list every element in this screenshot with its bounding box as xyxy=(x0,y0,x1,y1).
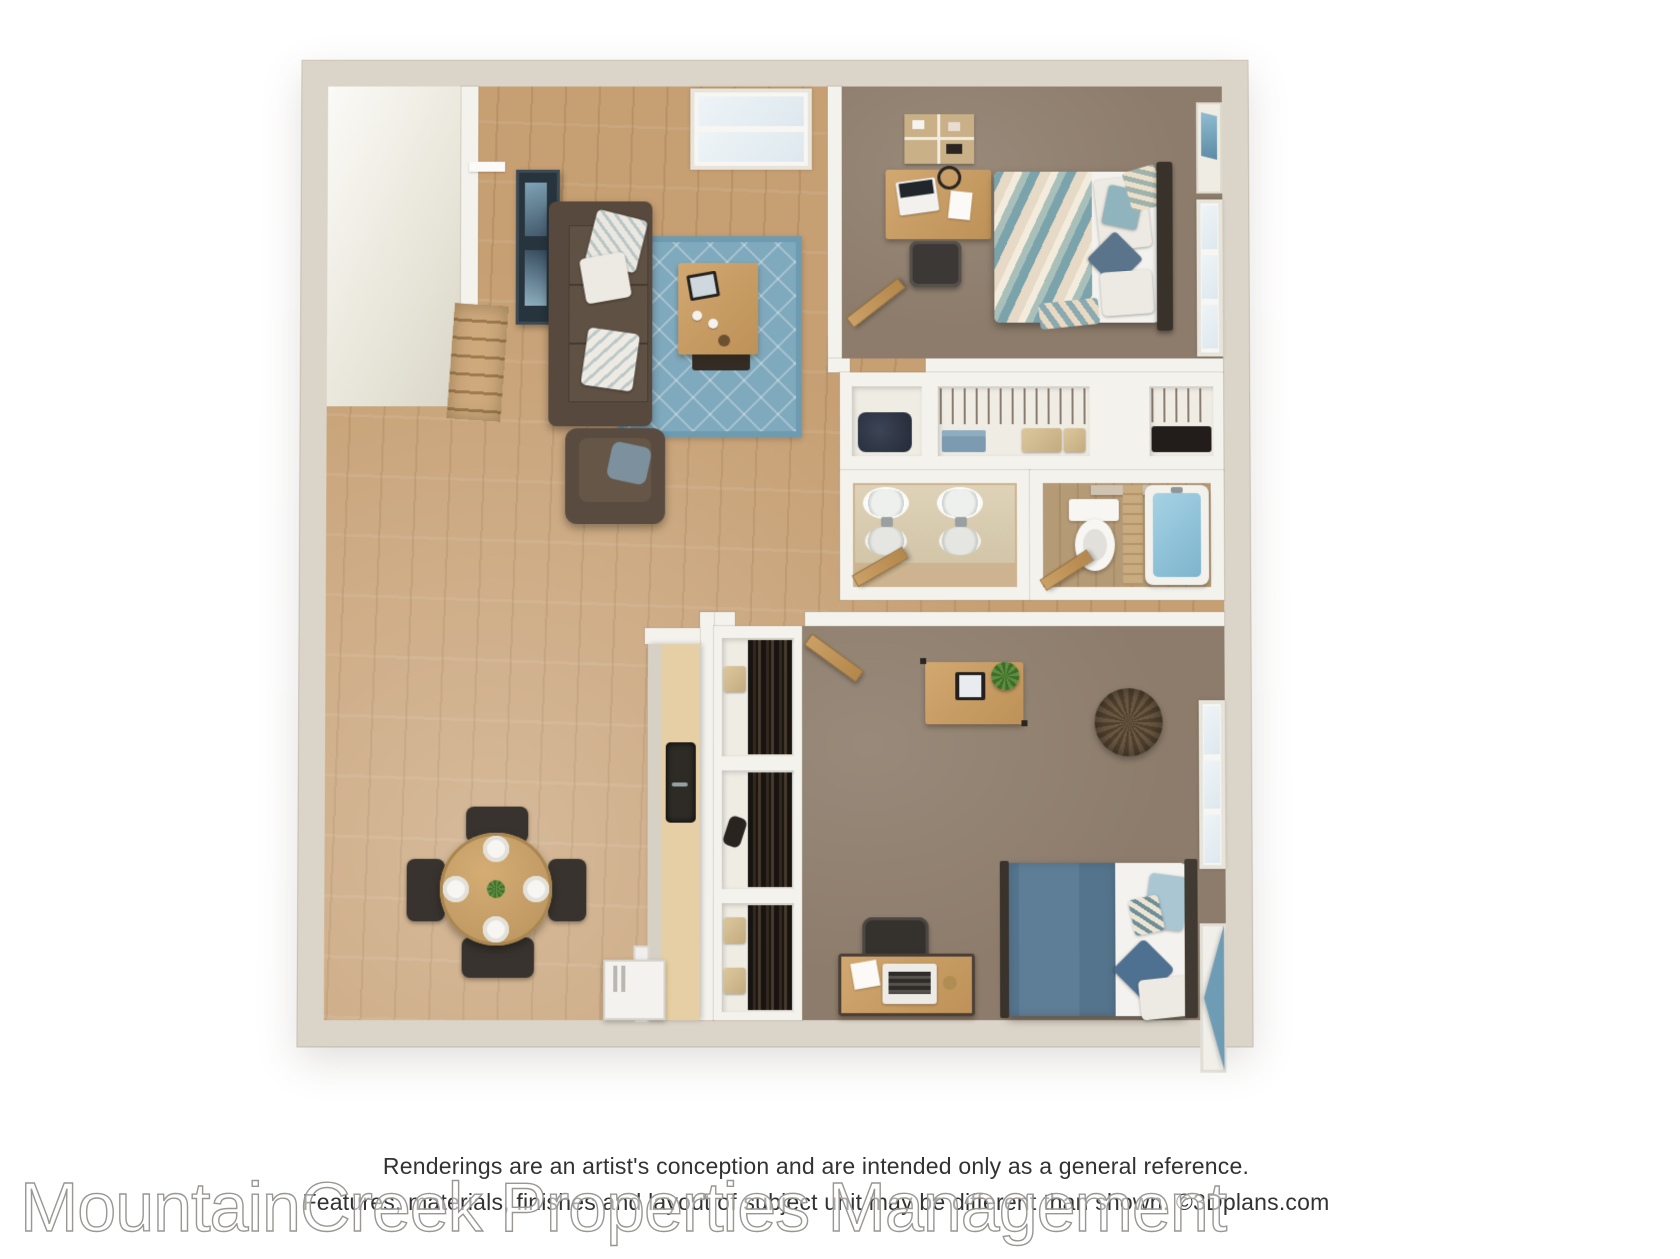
hanging-clothes xyxy=(748,905,792,1010)
bathroom xyxy=(1030,470,1224,600)
art-panel xyxy=(525,183,547,237)
dresser-leg xyxy=(920,658,926,664)
storage-box xyxy=(1064,428,1086,452)
bedroom-1-south-wall xyxy=(926,358,1223,372)
window-pane xyxy=(1204,815,1220,863)
tablet-screen xyxy=(959,675,981,697)
wall-art-bedroom-1 xyxy=(1196,102,1222,193)
hanging-clothes xyxy=(1151,388,1211,422)
utility-closet xyxy=(852,386,922,456)
headphones xyxy=(937,166,961,190)
pinned-note xyxy=(948,122,960,131)
linen-closet xyxy=(1149,386,1213,456)
plate xyxy=(443,876,469,902)
window-pane xyxy=(1202,305,1218,349)
tub-faucet xyxy=(1171,487,1183,493)
window-pane xyxy=(1204,706,1220,754)
sink xyxy=(865,489,907,517)
fridge-handle xyxy=(613,966,617,992)
floor-plan-rendering-page: Renderings are an artist's conception an… xyxy=(0,0,1680,1259)
bathroom-door xyxy=(1040,550,1094,591)
faucet xyxy=(955,517,967,527)
sofa-pillow xyxy=(581,327,641,391)
sink-faucet xyxy=(672,782,688,786)
tablet-screen xyxy=(690,274,717,298)
closet-row xyxy=(840,372,1224,470)
bed-2-headboard xyxy=(1184,859,1198,1018)
vanity-bathroom xyxy=(840,470,1030,600)
basket xyxy=(724,666,746,692)
typewriter-keys xyxy=(889,972,931,994)
hanging-clothes xyxy=(748,772,792,887)
hall-closet xyxy=(938,386,1090,456)
watermark: MountainCreek Properties Management xyxy=(20,1172,1226,1242)
sink-mirror-reflection xyxy=(939,527,981,555)
bathtub xyxy=(1145,485,1209,585)
bowl xyxy=(718,335,730,347)
toilet-tank xyxy=(1069,499,1119,521)
fridge-handle xyxy=(621,966,625,992)
accessory xyxy=(722,815,748,849)
closet-cubby xyxy=(722,903,794,1012)
dark-clothes-pile xyxy=(1151,426,1211,452)
plate xyxy=(483,916,509,942)
staircase xyxy=(446,303,508,422)
refrigerator xyxy=(603,960,665,1021)
living-room-window xyxy=(690,88,812,169)
laptop-screen xyxy=(899,179,934,197)
apartment-floor-plan xyxy=(297,61,1252,1047)
table-centerpiece xyxy=(487,880,505,898)
pinned-note xyxy=(912,120,924,129)
dresser-leg xyxy=(1021,720,1027,726)
hanging-clothes xyxy=(940,388,1088,424)
closet-cubby xyxy=(722,770,794,889)
desk-knob xyxy=(943,976,957,990)
window-pane xyxy=(1202,255,1218,299)
plate xyxy=(483,836,509,862)
sofa-pillow xyxy=(579,251,632,304)
dining-chair xyxy=(548,859,586,921)
closet-cubby xyxy=(722,638,794,756)
kitchen-wall-stub xyxy=(645,628,700,644)
folded-towels xyxy=(942,430,986,452)
blue-drape xyxy=(1204,925,1225,1070)
basket xyxy=(724,968,746,994)
window-pane xyxy=(698,96,804,126)
hanging-clothes xyxy=(748,640,792,754)
pinned-photo xyxy=(946,144,962,154)
bed-2-pillow xyxy=(1138,975,1192,1020)
paper xyxy=(948,190,973,220)
bedroom-2-closet xyxy=(714,626,802,1020)
desk-bedroom-2 xyxy=(838,954,975,1017)
basket xyxy=(724,917,746,943)
bed-1-headboard xyxy=(1156,162,1173,331)
armchair-pillow xyxy=(606,440,653,485)
potted-plant xyxy=(991,662,1019,690)
art-panel xyxy=(525,250,547,306)
window-pane xyxy=(1204,760,1220,808)
cup xyxy=(692,311,702,321)
window-pane xyxy=(1201,205,1217,249)
bedroom-2-window xyxy=(1199,700,1226,869)
paper xyxy=(850,960,880,990)
bedroom-2-north-wall xyxy=(805,612,1224,626)
bed-1-pillow xyxy=(1100,269,1155,316)
corkboard xyxy=(904,114,974,164)
bedroom-1-west-wall xyxy=(828,87,842,373)
coffee-table xyxy=(678,263,758,354)
tablet xyxy=(686,271,720,302)
water-heater xyxy=(858,412,912,452)
sink xyxy=(939,489,981,517)
laptop xyxy=(895,177,939,216)
bed-2-footboard xyxy=(1000,861,1009,1018)
bed-2-blanket xyxy=(1009,863,1116,1016)
tablet xyxy=(955,672,985,700)
stair-railing xyxy=(469,162,505,172)
dining-table xyxy=(440,833,553,946)
cup xyxy=(708,319,718,329)
plate xyxy=(523,876,549,902)
dresser xyxy=(925,662,1023,724)
bedroom-1-south-wall xyxy=(828,358,850,372)
armchair xyxy=(565,428,665,524)
art-panel xyxy=(1201,112,1217,160)
faucet xyxy=(881,517,893,527)
corkboard-divider xyxy=(904,137,974,140)
bedroom-2-west-wall xyxy=(700,612,714,1020)
bathtub-water xyxy=(1153,493,1201,577)
desk-chair-bedroom-1 xyxy=(910,241,962,287)
woven-pouf xyxy=(1094,688,1162,756)
window-pane xyxy=(698,132,804,162)
desk-bedroom-1 xyxy=(886,170,992,239)
tub-surround xyxy=(1123,485,1143,585)
typewriter xyxy=(882,964,936,1004)
storage-box xyxy=(1022,428,1062,452)
bedroom-1-window xyxy=(1196,199,1223,356)
